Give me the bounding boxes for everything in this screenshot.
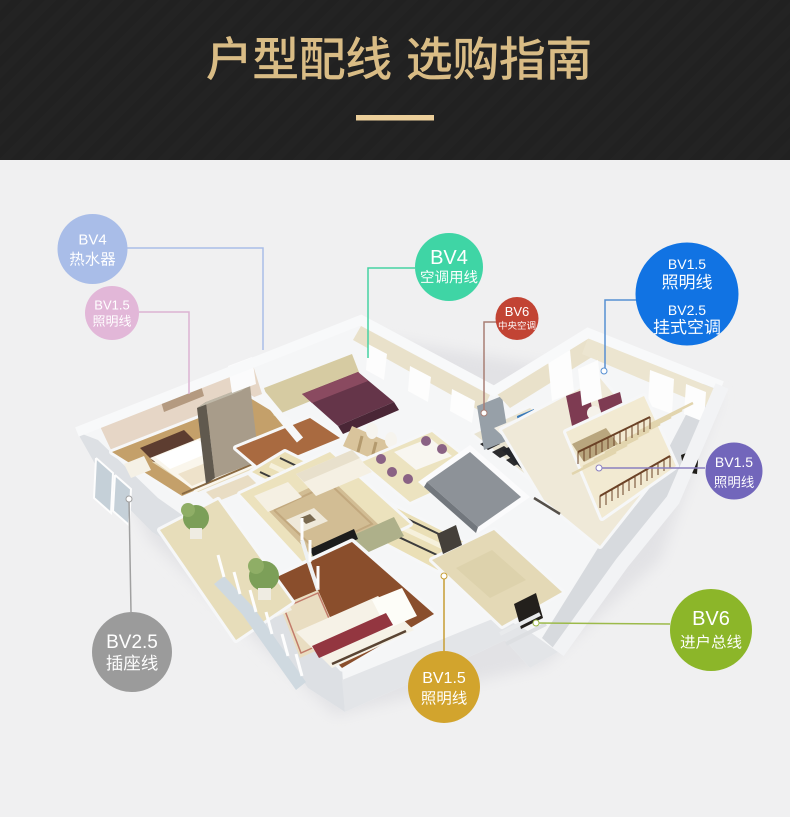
svg-text:BV4: BV4 [430,247,468,269]
svg-text:BV6: BV6 [505,304,530,319]
svg-text:BV4: BV4 [78,231,106,248]
svg-text:BV6: BV6 [692,608,730,630]
svg-text:BV2.5: BV2.5 [668,302,706,318]
svg-text:BV2.5: BV2.5 [106,632,158,653]
svg-text:BV1.5: BV1.5 [715,454,753,470]
svg-text:BV1.5: BV1.5 [668,256,706,272]
svg-text:BV1.5: BV1.5 [94,298,129,313]
svg-text:BV1.5: BV1.5 [422,670,466,687]
